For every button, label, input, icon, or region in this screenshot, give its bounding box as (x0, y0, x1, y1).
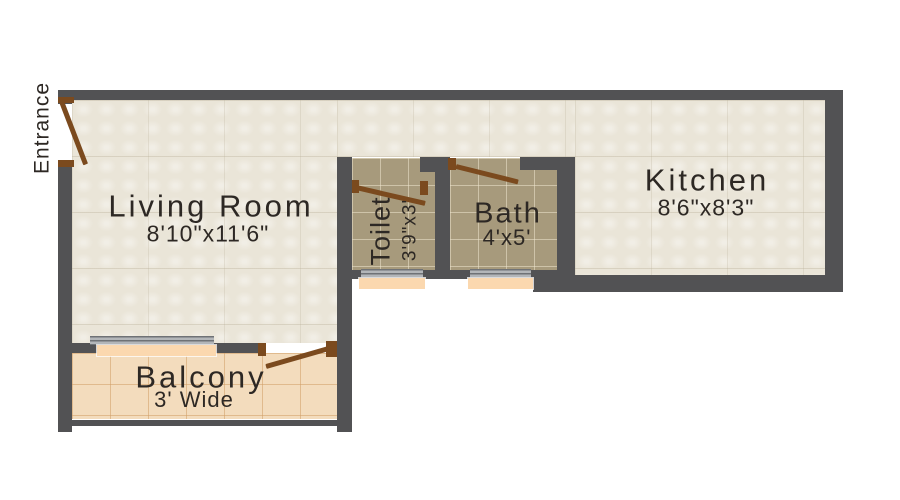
wall-kitchen-bottom (533, 275, 843, 292)
kitchen-size: 8'6"x8'3" (658, 197, 755, 220)
living-balcony-window-icon (90, 336, 214, 345)
wall-left (58, 162, 72, 432)
bath-size: 4'x5' (483, 227, 532, 249)
bath-window-sill (468, 278, 533, 289)
toilet-label: Toilet (368, 196, 395, 265)
kitchen-label: Kitchen (645, 165, 769, 196)
entrance-label: Entrance (32, 82, 53, 174)
wall-top (58, 90, 843, 100)
living-room-size: 8'10"x11'6" (147, 223, 270, 246)
bath-window-icon (470, 269, 531, 278)
wall-right (825, 90, 843, 292)
balcony-door-jamb-left (258, 343, 266, 356)
balcony-railing (72, 420, 337, 426)
wall-living-right (337, 157, 352, 432)
living-balcony-window-sill (97, 345, 216, 356)
toilet-window-icon (361, 269, 423, 278)
balcony-size: 3' Wide (154, 389, 234, 411)
toilet-door-jamb-right (420, 181, 428, 195)
wall-bath-left (435, 157, 450, 278)
entrance-door-jamb-bottom (58, 160, 74, 167)
toilet-size: 3'9"x3' (401, 199, 420, 261)
floor-plan: Entrance Living Room 8'10"x11'6" Toilet … (0, 0, 900, 500)
toilet-window-sill (359, 278, 425, 289)
wall-bath-right (557, 157, 575, 278)
living-room-label: Living Room (108, 191, 313, 222)
passage-floor (337, 100, 575, 157)
